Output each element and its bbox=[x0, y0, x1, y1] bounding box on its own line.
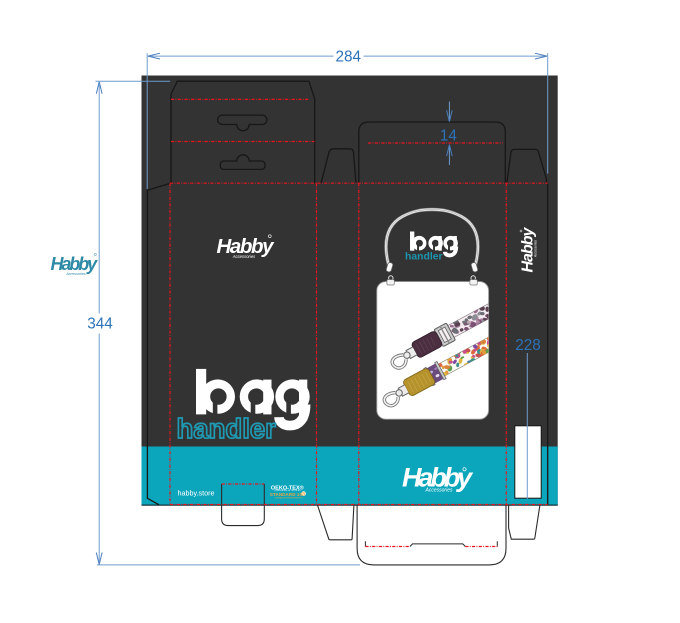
svg-text:handler: handler bbox=[405, 251, 443, 262]
svg-text:STANDARD 100: STANDARD 100 bbox=[270, 492, 305, 497]
svg-text:14: 14 bbox=[440, 127, 458, 144]
svg-text:Accessories: Accessories bbox=[534, 240, 538, 259]
svg-text:22HGB1138 HOHENSTEIN HTTI: 22HGB1138 HOHENSTEIN HTTI bbox=[275, 497, 303, 499]
svg-text:Accessories: Accessories bbox=[65, 272, 86, 276]
svg-text:Habby: Habby bbox=[51, 254, 99, 274]
svg-text:Accessories: Accessories bbox=[425, 488, 453, 494]
svg-text:228: 228 bbox=[515, 337, 541, 354]
svg-text:284: 284 bbox=[336, 48, 362, 65]
svg-text:Accessories: Accessories bbox=[232, 254, 256, 259]
svg-text:habby.store: habby.store bbox=[178, 488, 215, 497]
svg-text:344: 344 bbox=[87, 316, 113, 333]
svg-text:handler: handler bbox=[177, 413, 277, 444]
